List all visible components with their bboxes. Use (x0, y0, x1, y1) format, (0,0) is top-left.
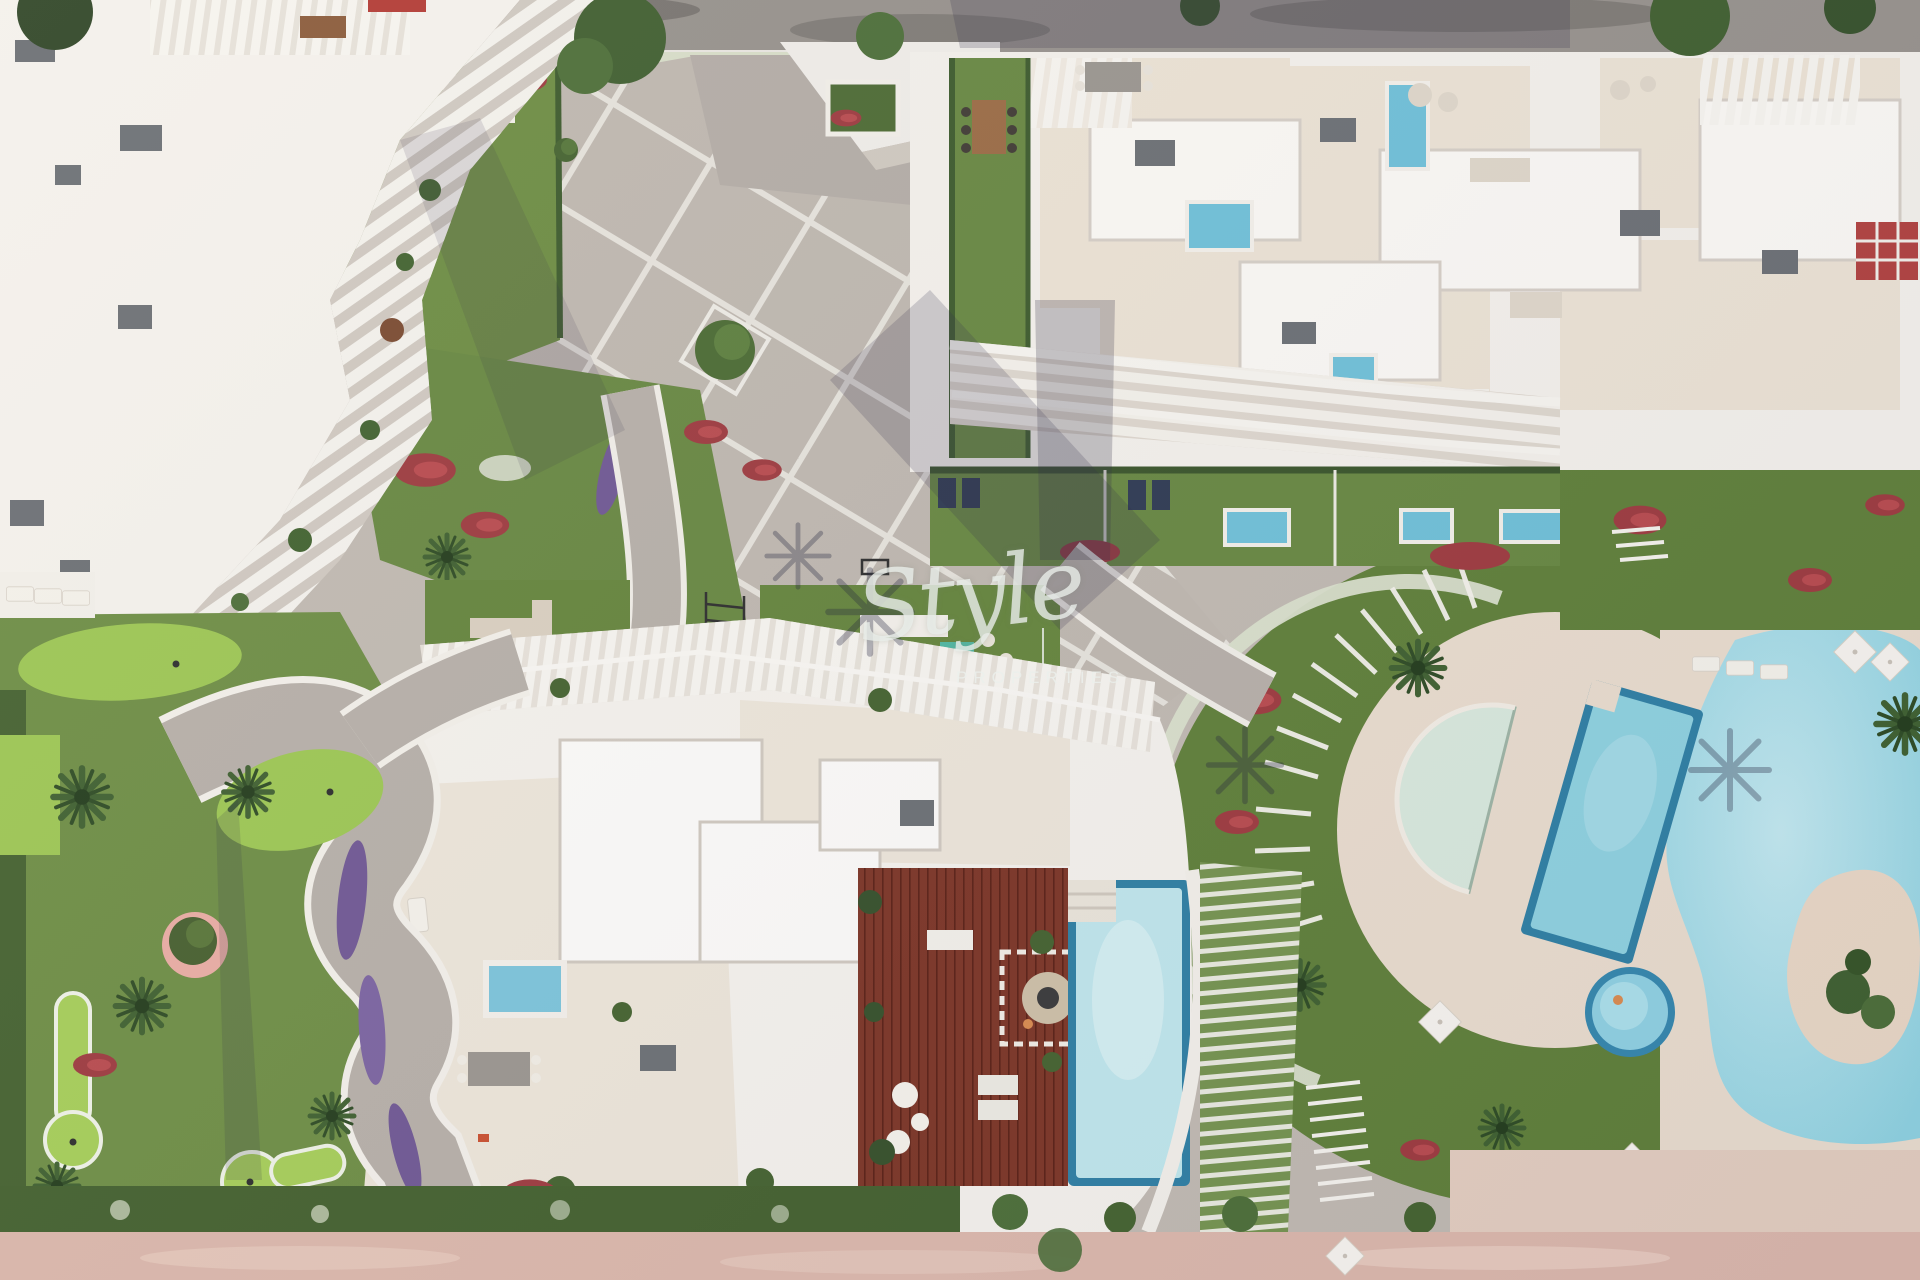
hedge-south (0, 1186, 960, 1236)
rooftop-table (300, 16, 346, 38)
wood-roof-deck (858, 868, 1094, 1186)
wooden-table (972, 100, 1006, 154)
scene-render (0, 0, 1920, 1280)
east-trellis (1200, 862, 1302, 1232)
red-planter-grid (1856, 222, 1918, 280)
aerial-render-canvas: Style PROPERTIES (0, 0, 1920, 1280)
